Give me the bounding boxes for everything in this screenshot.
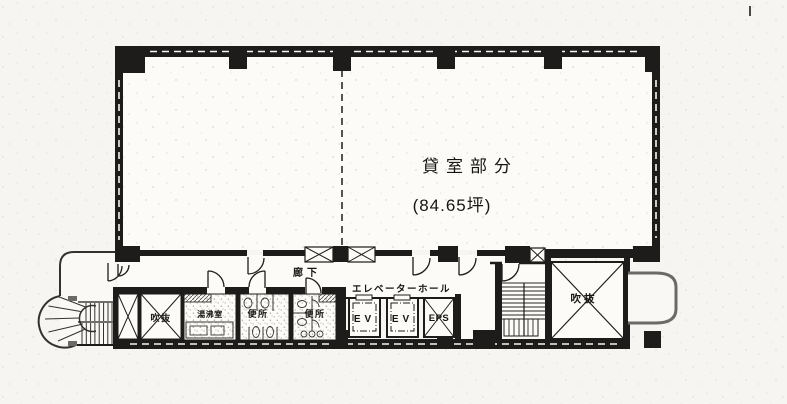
kitchenette: 湯沸室 bbox=[184, 294, 236, 340]
column bbox=[544, 46, 562, 69]
rental-room-area-label: (84.65坪) bbox=[413, 196, 492, 215]
counter bbox=[184, 294, 211, 302]
column bbox=[229, 46, 247, 69]
elevator-door-mark bbox=[394, 295, 410, 300]
floor-plan-drawing: 貸室部分 (84.65坪) bbox=[0, 0, 787, 404]
elevator-hall-label: エレベーターホール bbox=[352, 283, 451, 295]
atrium-right-label: 吹抜 bbox=[571, 292, 598, 305]
counter bbox=[319, 294, 336, 302]
toilet-women-label: 便所 bbox=[304, 308, 325, 319]
shaft-box bbox=[530, 248, 545, 262]
shaft-room-left bbox=[118, 294, 138, 339]
elevator-ev1: EV bbox=[349, 295, 380, 337]
eps-shaft: EPS bbox=[424, 298, 454, 337]
shaft-box bbox=[305, 247, 333, 262]
corridor-label: 廊下 bbox=[293, 266, 321, 279]
elevator-hall: エレベーターホール EV EV EPS bbox=[349, 283, 454, 337]
floor-plan-page: 貸室部分 (84.65坪) bbox=[0, 0, 787, 404]
ev1-label: EV bbox=[354, 314, 375, 325]
toilet-men: 便所 bbox=[240, 294, 289, 340]
toilet-men-label: 便所 bbox=[247, 308, 268, 319]
shaft-box bbox=[348, 247, 375, 262]
eps-label: EPS bbox=[429, 313, 450, 324]
column bbox=[437, 46, 455, 69]
kitchenette-label: 湯沸室 bbox=[197, 309, 223, 319]
atrium-left: 吹抜 bbox=[141, 294, 181, 339]
elevator-ev2: EV bbox=[387, 295, 418, 337]
atrium-right: 吹抜 bbox=[551, 262, 624, 339]
column bbox=[644, 331, 661, 348]
column bbox=[333, 46, 351, 71]
column bbox=[115, 46, 145, 73]
toilet-women: 便所 bbox=[293, 294, 336, 340]
column bbox=[473, 330, 495, 349]
elevator-door-mark bbox=[356, 295, 372, 300]
column bbox=[645, 46, 660, 72]
atrium-left-label: 吹抜 bbox=[150, 312, 171, 323]
ev2-label: EV bbox=[392, 314, 413, 325]
corridor: 廊下 bbox=[293, 266, 321, 279]
rental-room-name-label: 貸室部分 bbox=[422, 157, 518, 176]
